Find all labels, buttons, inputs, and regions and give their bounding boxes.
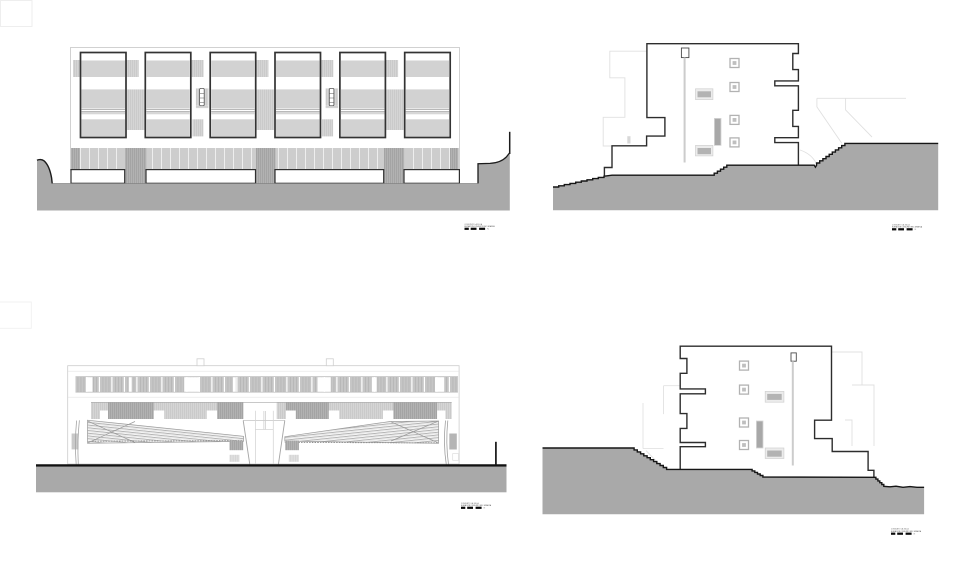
svg-text:N: N <box>484 508 486 510</box>
svg-text:N: N <box>487 229 489 231</box>
svg-text:N: N <box>914 534 916 536</box>
svg-text:CONJUNTO LA SILLA: CONJUNTO LA SILLA <box>891 528 909 531</box>
svg-text:CONJUNTO LA SILLA: CONJUNTO LA SILLA <box>461 502 479 505</box>
svg-text:CONJUNTO LA SILLA: CONJUNTO LA SILLA <box>465 223 483 226</box>
svg-text:CONJUNTO LA SILLA: CONJUNTO LA SILLA <box>892 223 910 226</box>
svg-text:N: N <box>915 229 917 231</box>
